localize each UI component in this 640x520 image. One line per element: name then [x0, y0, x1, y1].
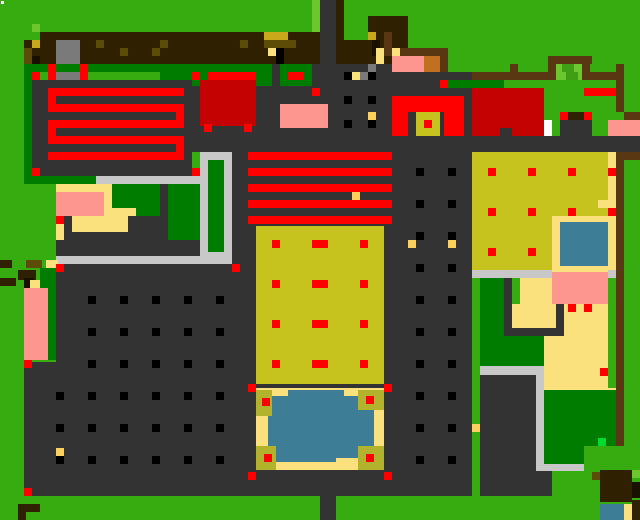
town-map[interactable]	[0, 0, 640, 520]
game-screen	[0, 0, 640, 520]
